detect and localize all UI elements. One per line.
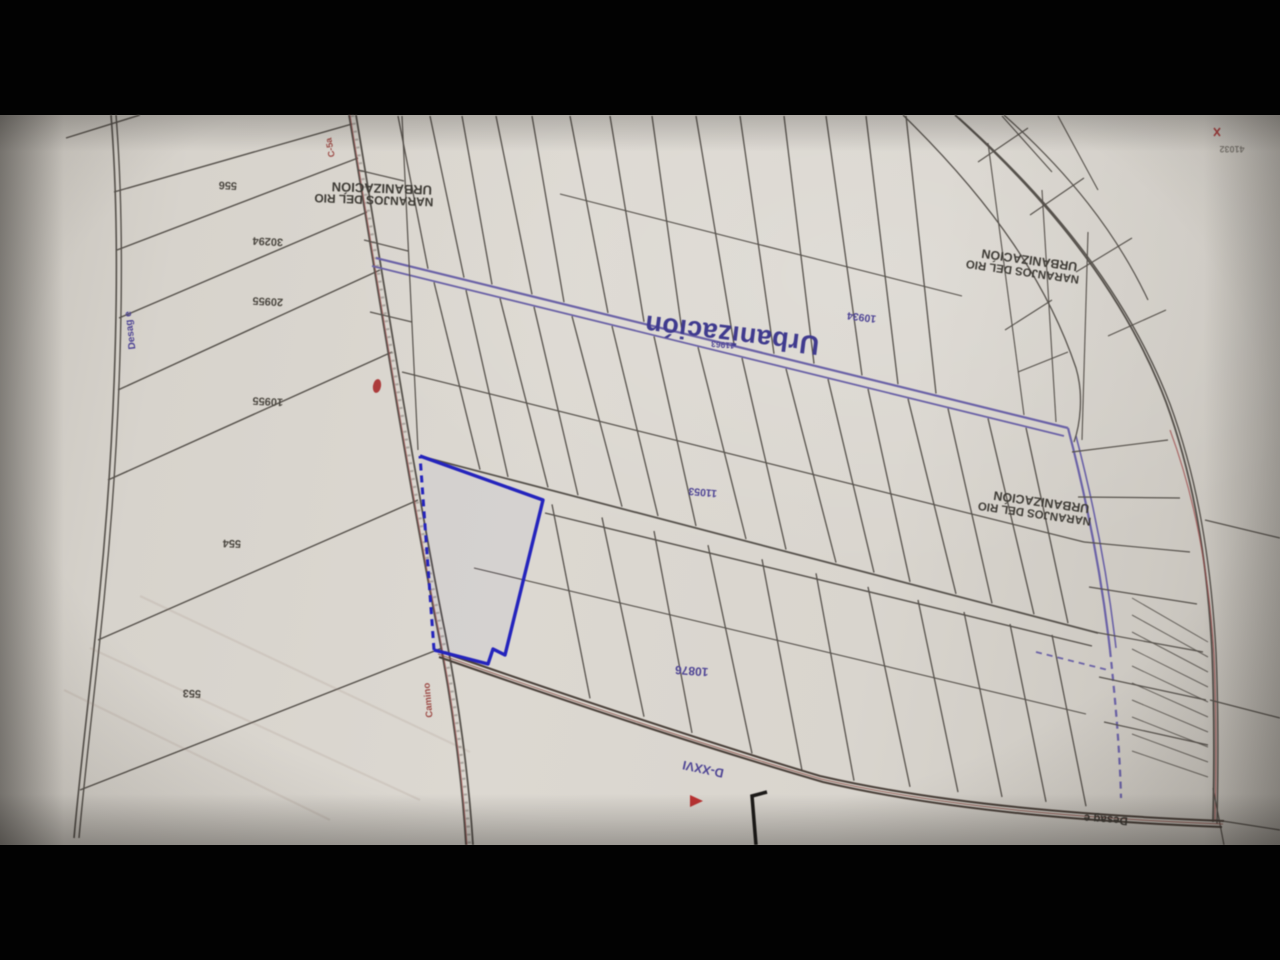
cadastral-map: 556 30294 20955 10955 554 553 Desag e C-… <box>0 115 1280 845</box>
parcel-line <box>826 116 862 375</box>
parcel-line <box>500 298 548 487</box>
fan-parcel-line <box>1089 587 1197 604</box>
upper-right-parcel-line <box>1042 190 1056 422</box>
parcel-line <box>654 531 692 733</box>
parcel-line <box>572 316 622 507</box>
parcel-number-30294: 30294 <box>251 234 283 248</box>
fan-parcel-line <box>1072 440 1168 452</box>
parcel-line <box>908 399 956 594</box>
upper-right-parcel-line <box>1058 116 1098 190</box>
parcel-line <box>612 326 658 516</box>
drain-edge-a <box>436 650 1224 821</box>
paper-crease <box>64 690 330 820</box>
edge-exit-line <box>1205 520 1280 538</box>
parcel-line <box>868 587 910 787</box>
parcel-line <box>610 116 644 322</box>
map-photo: 556 30294 20955 10955 554 553 Desag e C-… <box>0 115 1280 845</box>
parcel-number-20955: 20955 <box>252 294 283 308</box>
red-dot-on-camino <box>372 378 382 393</box>
edge-exit-line <box>1216 820 1280 830</box>
parcel-line <box>762 559 802 770</box>
fan-parcel-line <box>1099 677 1206 700</box>
black-bracket-mark <box>752 792 767 845</box>
parcel-line <box>786 369 836 563</box>
purple-avenue-upper-b <box>372 266 1064 436</box>
rural-parcel-line <box>98 500 418 640</box>
parcel-line <box>906 116 936 394</box>
parcel-line <box>466 290 508 477</box>
letterbox-bottom <box>0 845 1280 960</box>
hatch-line <box>1132 717 1208 747</box>
parcel-number-11963: 11963 <box>710 339 734 351</box>
edge-exit-line <box>1210 700 1280 718</box>
rural-parcel-line <box>118 270 380 390</box>
red-arrow-mark <box>690 795 703 807</box>
camino-label: Camino <box>421 682 435 718</box>
sheet-number-41032: 41032 <box>1219 144 1244 154</box>
parcel-number-10876: 10876 <box>674 663 709 679</box>
red-asterisk-topright <box>1214 128 1220 136</box>
upper-right-parcel-line <box>988 143 1024 415</box>
upper-right-parcel-line <box>1018 352 1068 372</box>
right-boundary-region <box>903 115 1280 845</box>
drain-red-line <box>438 654 1223 824</box>
parcel-line <box>708 545 752 753</box>
camino-front-line <box>402 116 418 450</box>
parcel-number-554: 554 <box>222 537 242 550</box>
hatch-line <box>1132 632 1208 672</box>
hatch-line <box>1132 734 1208 762</box>
right-boundary-b <box>959 118 1218 824</box>
rural-parcel-line <box>119 212 367 318</box>
parcel-line <box>740 116 774 354</box>
hatch-line <box>1132 598 1208 642</box>
camino-front-line <box>358 170 404 181</box>
urbanization-grid <box>358 116 1121 806</box>
hatch-line <box>1132 751 1208 777</box>
camino-front-line <box>370 312 412 322</box>
parcel-number-10934: 10934 <box>846 309 877 324</box>
parcel-line <box>816 573 854 780</box>
upper-right-parcel-line <box>1005 300 1052 330</box>
parcel-line <box>964 612 1002 797</box>
upper-right-parcel-line <box>978 128 1028 162</box>
parcel-line <box>698 347 746 539</box>
paper-crease <box>90 648 420 800</box>
highlighted-parcel-outline <box>420 456 543 664</box>
purple-dashed-segment <box>1036 652 1108 670</box>
parcel-number-553: 553 <box>183 687 202 700</box>
parcel-line <box>868 389 910 582</box>
parcel-line <box>462 116 492 285</box>
parcel-number-10955: 10955 <box>252 394 283 408</box>
fan-parcel-line <box>1084 542 1190 552</box>
rural-parcel-line <box>66 115 140 138</box>
parcel-number-11053: 11053 <box>688 485 718 499</box>
parcel-line <box>552 504 590 698</box>
parcel-line <box>434 282 480 469</box>
fan-parcel-line <box>1078 497 1180 498</box>
parcel-line <box>784 116 814 364</box>
parcel-line <box>570 116 608 313</box>
midblock-line <box>474 568 1086 714</box>
parcel-line <box>496 116 532 294</box>
left-boundary-a <box>74 115 116 838</box>
paper-crease <box>140 596 470 752</box>
parcel-line <box>1010 624 1046 802</box>
road-code-c5a: C-5a <box>323 136 336 158</box>
parcel-line <box>430 116 464 278</box>
right-boundary-red-line <box>1170 430 1216 820</box>
parcel-line <box>866 116 898 384</box>
drain-code-dxxvi: D-XXVI <box>681 758 725 780</box>
parcel-number-556: 556 <box>218 179 237 192</box>
hatch-line <box>1132 683 1208 717</box>
parcel-line <box>534 307 578 495</box>
drain-label-bottomright: Desag e <box>1083 811 1128 826</box>
upper-right-parcel-line <box>1082 232 1088 440</box>
upper-right-parcel-line <box>1002 116 1052 172</box>
hatch-line <box>1132 666 1208 702</box>
parcel-line <box>828 379 874 572</box>
midblock-line <box>560 194 962 296</box>
rural-parcel-line <box>108 352 392 480</box>
map-labels: 556 30294 20955 10955 554 553 Desag e C-… <box>123 136 1245 826</box>
urbanization-big-label: Urbanización <box>643 309 821 360</box>
parcel-line <box>918 600 958 792</box>
red-marks <box>372 128 1220 807</box>
drain-edge-b <box>439 657 1222 827</box>
letterbox-top <box>0 0 1280 115</box>
parcel-line <box>742 358 786 550</box>
hatch-line <box>1132 649 1208 687</box>
parcel-line <box>602 517 644 716</box>
highlighted-parcel <box>420 456 543 664</box>
drain-label-left: Desag e <box>123 310 139 350</box>
hatch-line <box>1132 615 1208 657</box>
hatch-line <box>1132 700 1208 732</box>
parcel-line <box>1026 428 1068 623</box>
parcel-line <box>532 116 564 302</box>
